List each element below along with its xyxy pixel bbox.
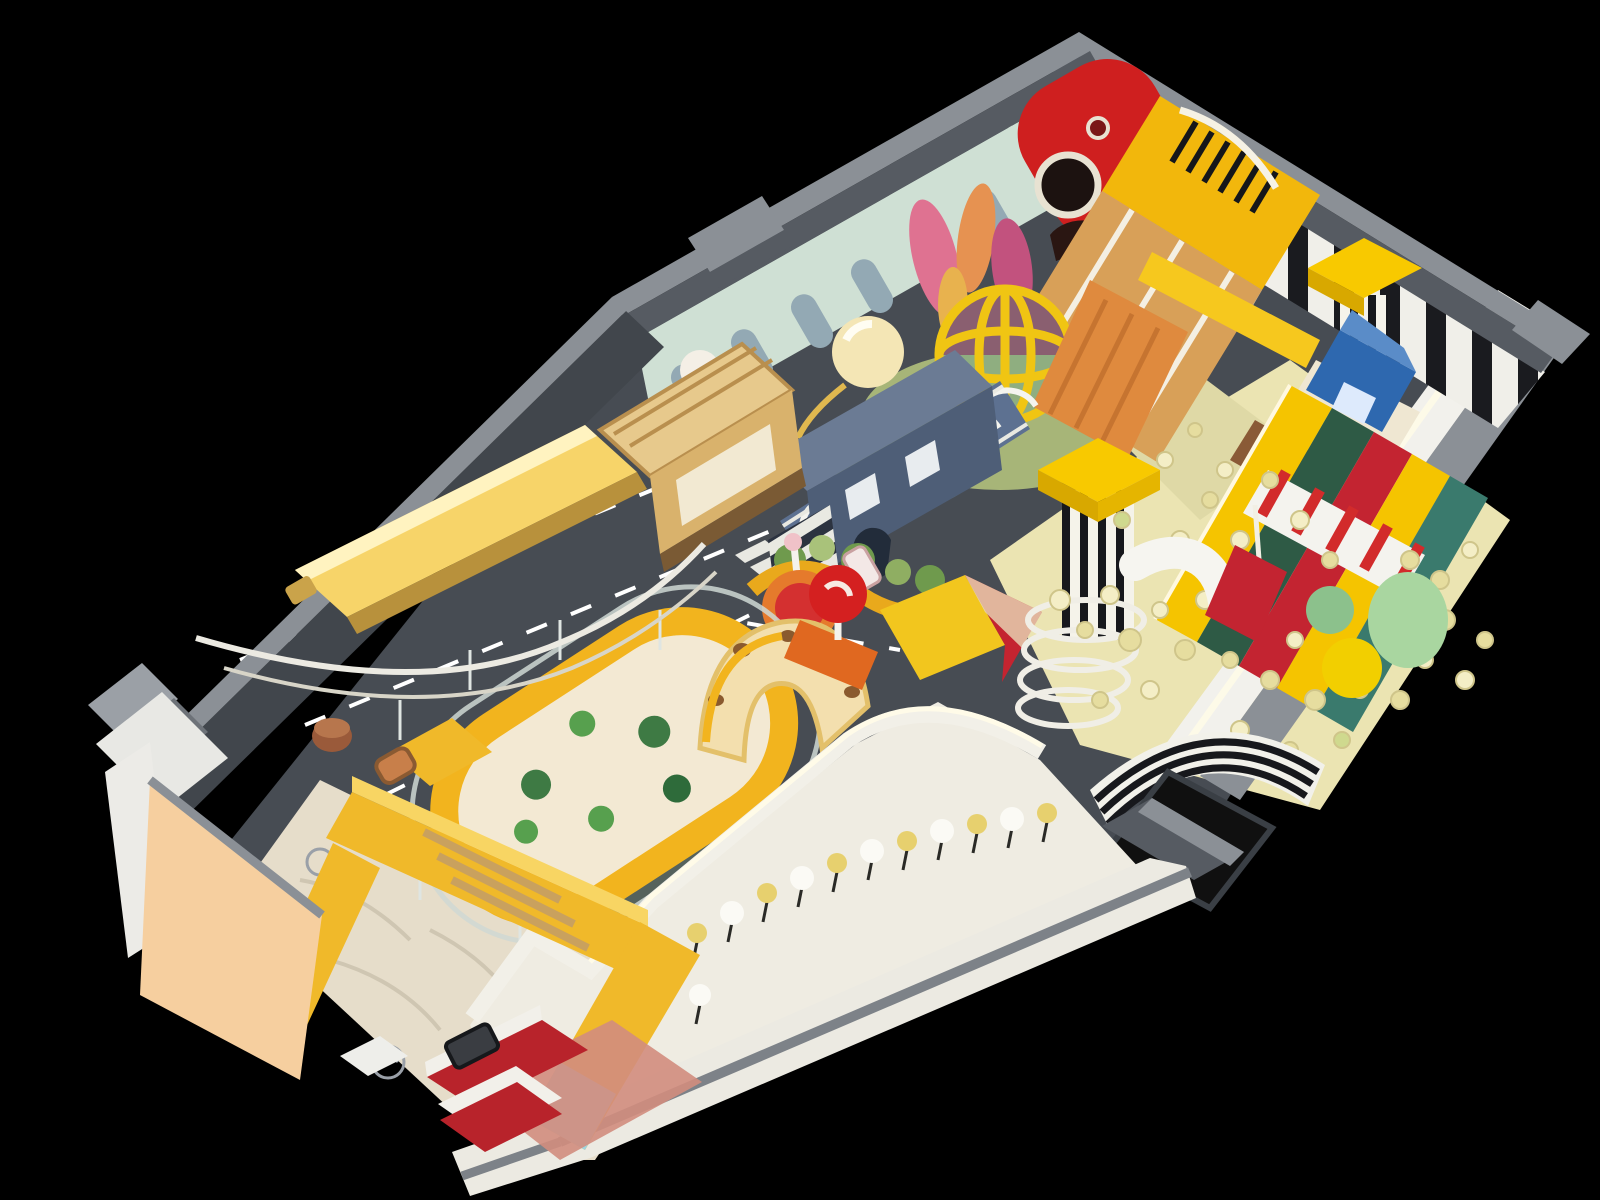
lollipop-disc: [809, 565, 867, 623]
toy-barrel-top: [314, 718, 350, 738]
yellow-ball: [1322, 638, 1382, 698]
bush: [885, 559, 911, 585]
green-egg: [1368, 572, 1448, 668]
train-eye: [1038, 155, 1098, 215]
green-ball: [1306, 586, 1354, 634]
bush: [809, 535, 835, 561]
train-light: [1088, 118, 1108, 138]
scene-canvas: [0, 0, 1600, 1200]
playground-render: [0, 0, 1600, 1200]
spinner-topper: [784, 533, 802, 551]
